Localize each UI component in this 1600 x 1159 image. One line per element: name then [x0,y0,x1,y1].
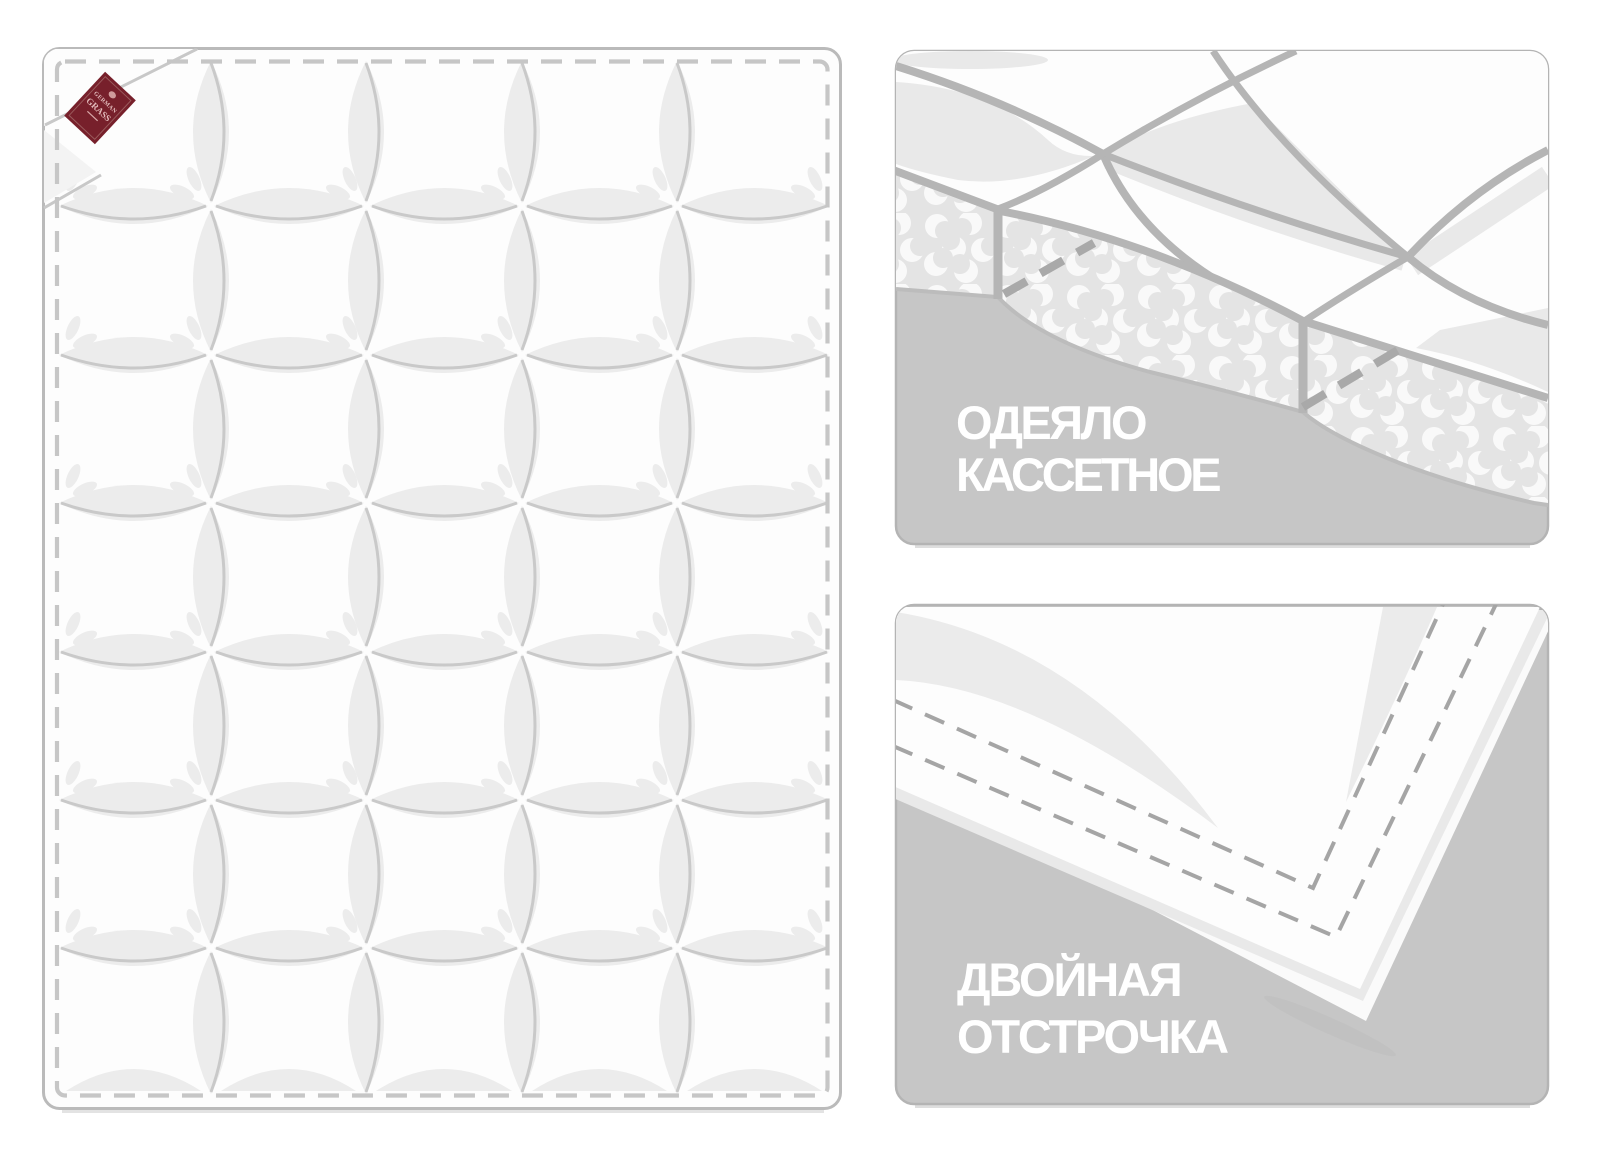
svg-text:ОДЕЯЛО: ОДЕЯЛО [956,396,1146,449]
svg-text:ОТСТРОЧКА: ОТСТРОЧКА [957,1010,1228,1063]
svg-text:ДВОЙНАЯ: ДВОЙНАЯ [957,953,1181,1006]
svg-text:КАССЕТНОЕ: КАССЕТНОЕ [956,448,1220,501]
